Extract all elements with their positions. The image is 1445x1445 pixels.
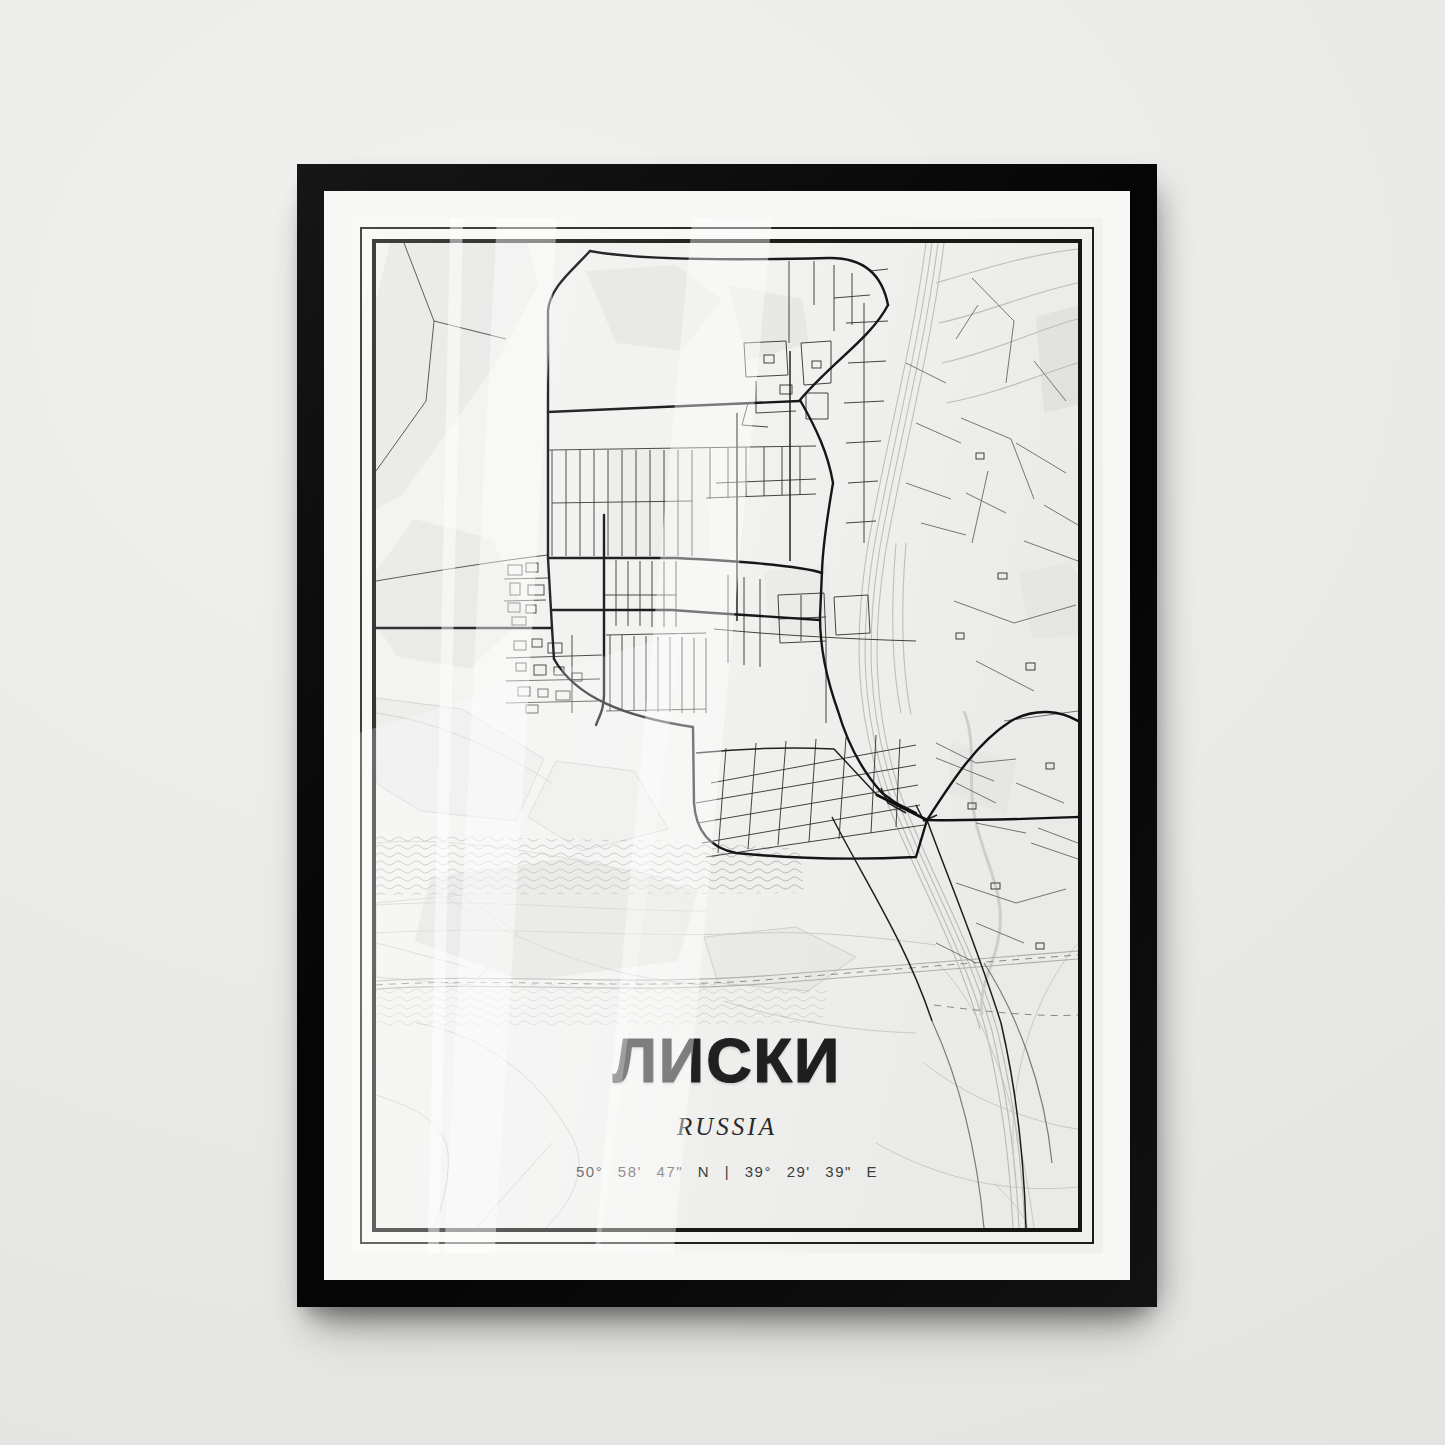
wall: ЛИСКИ RUSSIA 50° 58' 47" N | 39° 29' 39"…	[0, 0, 1445, 1445]
picture-frame: ЛИСКИ RUSSIA 50° 58' 47" N | 39° 29' 39"…	[297, 164, 1157, 1307]
poster: ЛИСКИ RUSSIA 50° 58' 47" N | 39° 29' 39"…	[324, 191, 1130, 1280]
inner-border-thin	[360, 227, 1094, 1244]
mat-board: ЛИСКИ RUSSIA 50° 58' 47" N | 39° 29' 39"…	[324, 191, 1130, 1280]
